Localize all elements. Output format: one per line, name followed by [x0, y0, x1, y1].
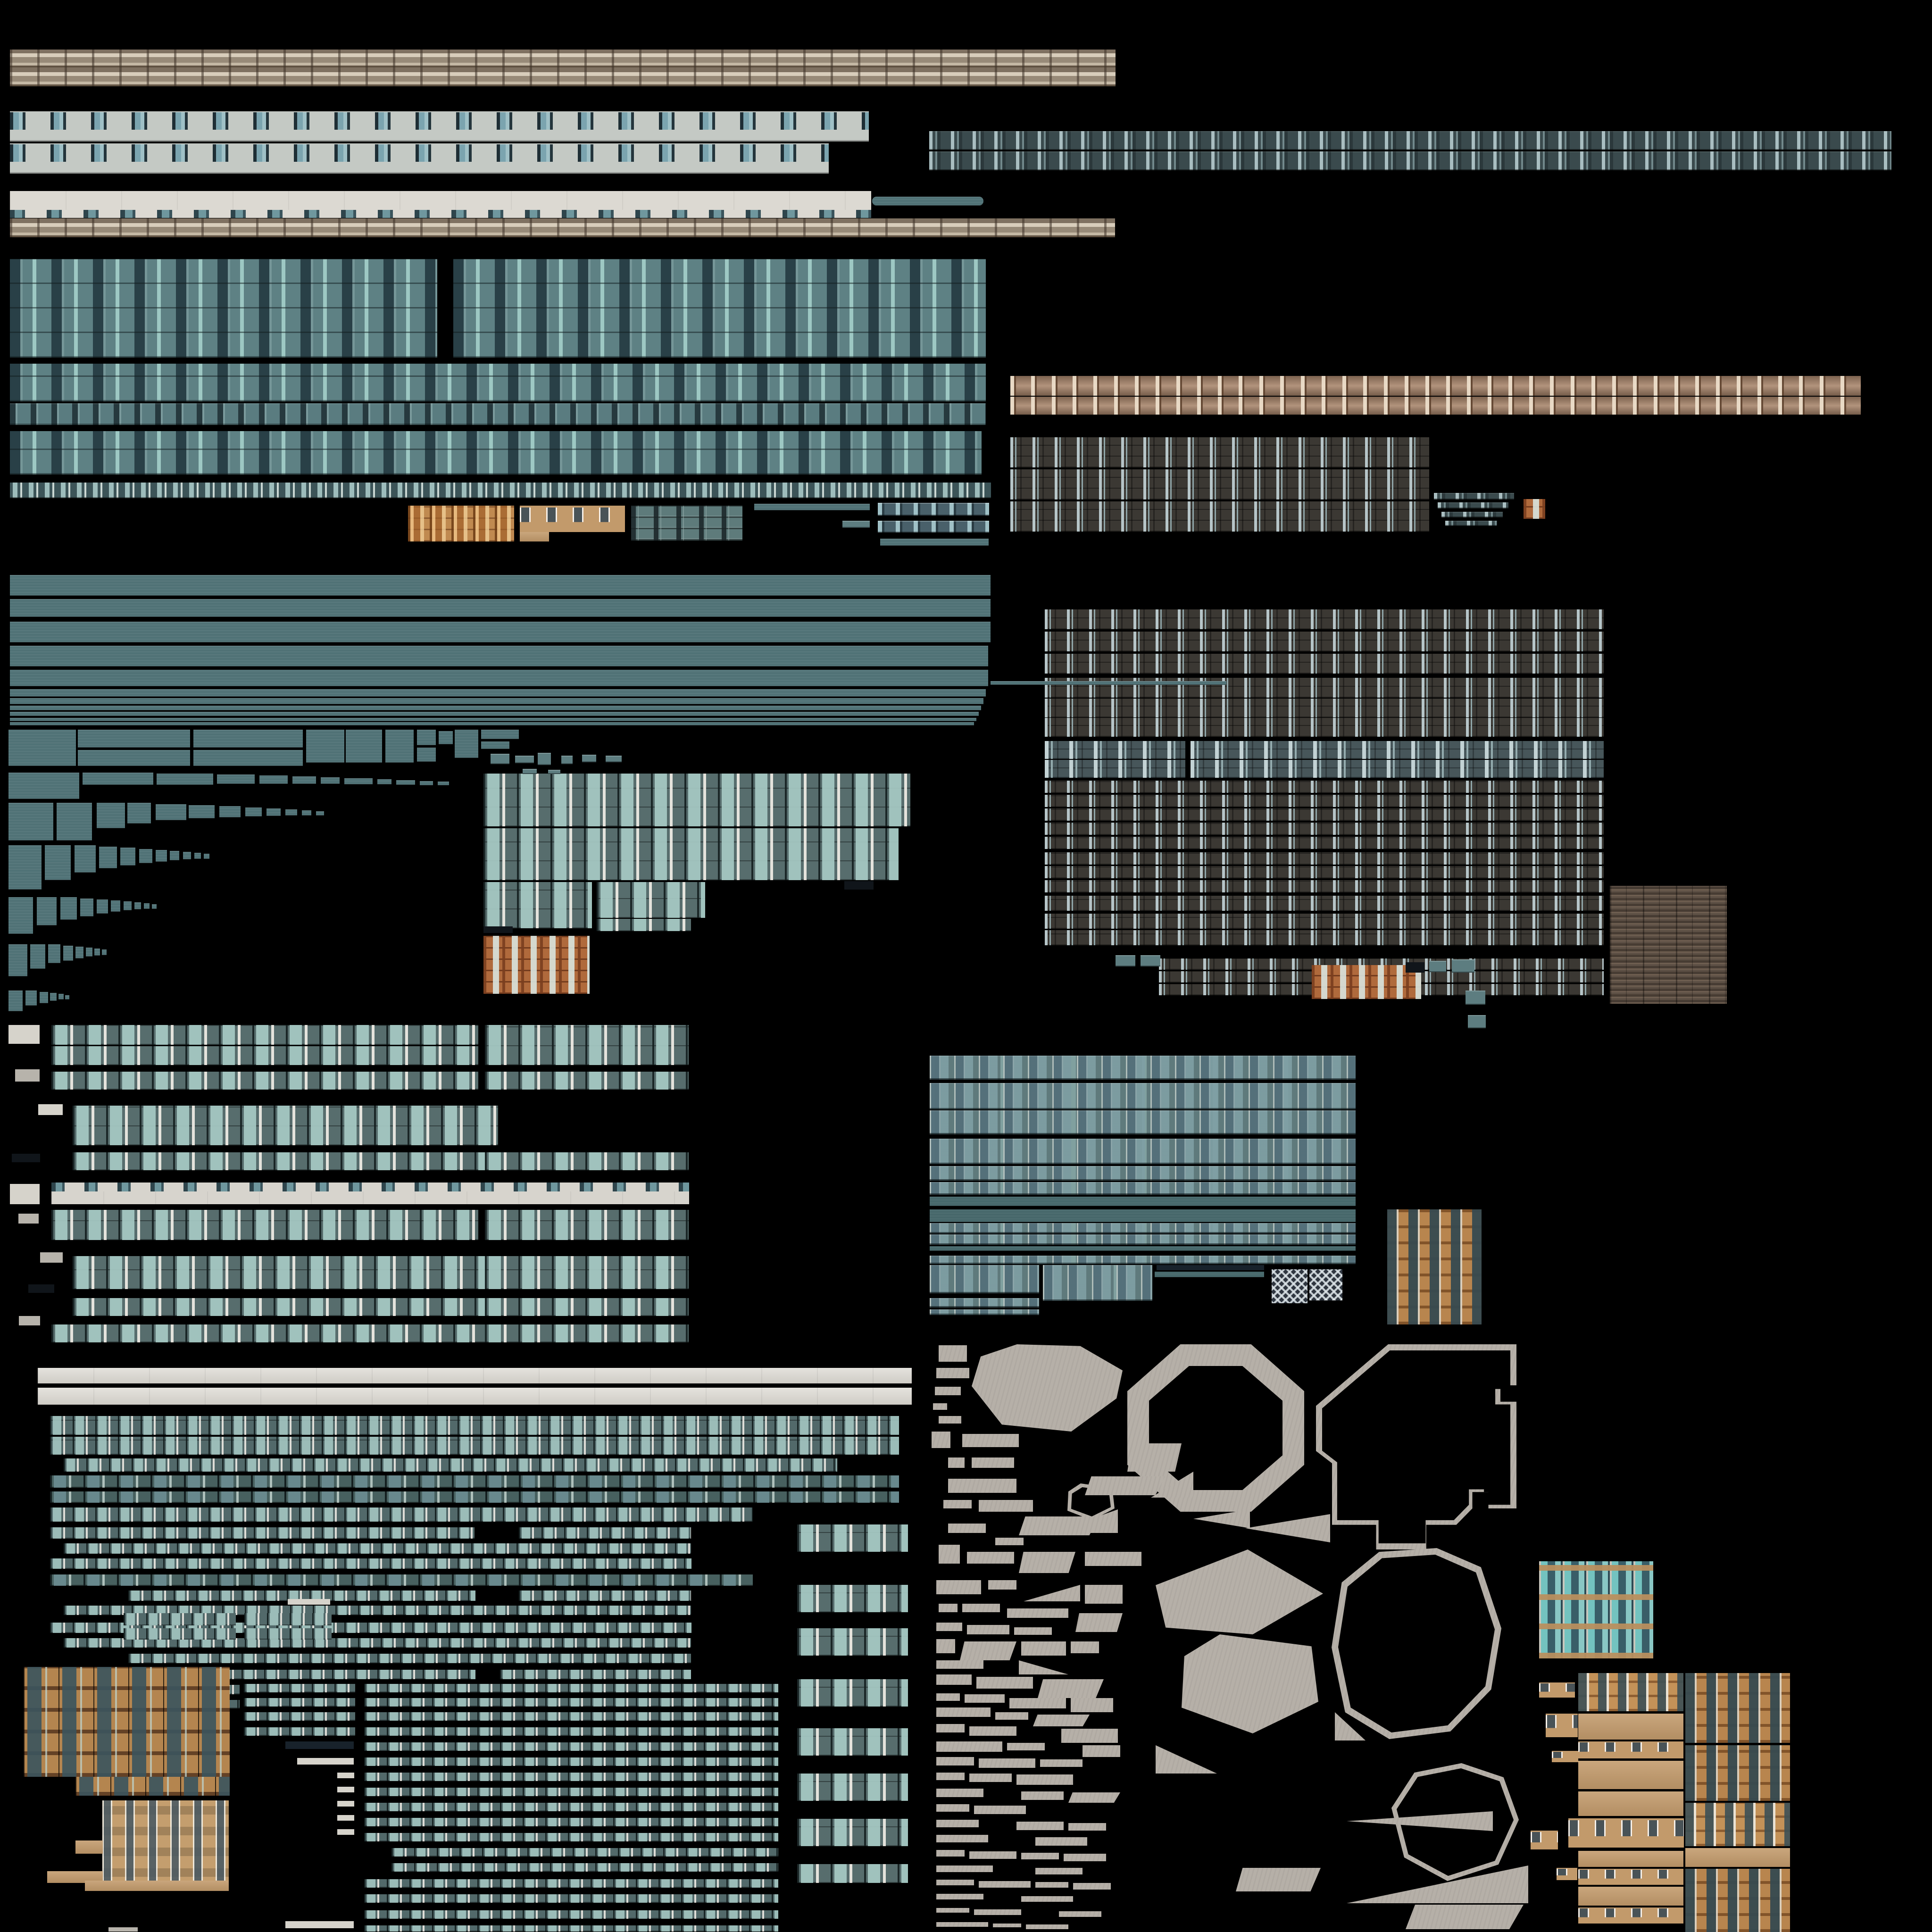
row-h [73, 1298, 500, 1316]
field-r14 [64, 1638, 691, 1648]
cascade-cell [156, 804, 186, 820]
cascade-cell [58, 994, 64, 999]
cascade-band-8 [10, 706, 981, 710]
poly-hexblob [972, 1344, 1123, 1432]
field-r5 [50, 1491, 899, 1503]
cascade-cell [481, 741, 509, 749]
poly-s56 [936, 1773, 965, 1780]
tanchip-2 [1546, 1714, 1578, 1737]
cascade-cell [8, 845, 42, 890]
poly-s80 [1021, 1896, 1073, 1902]
cascade-band-3 [10, 622, 991, 642]
poly-pentagon [1182, 1634, 1318, 1733]
poly-s90 [1156, 1745, 1217, 1774]
tealsolid-s2 [880, 539, 989, 546]
chip-a1 [8, 1025, 40, 1044]
tanchip-5 [1557, 1868, 1577, 1880]
darkgrid-t6 [1045, 852, 1604, 865]
tanchip-3 [1552, 1751, 1578, 1762]
cascade-cell [80, 899, 93, 916]
field-r22b [364, 1727, 778, 1736]
orangeblk-1 [1685, 1673, 1790, 1743]
cascade-cell [219, 806, 241, 817]
poly-s47 [936, 1724, 965, 1732]
brownstrip-1 [1010, 376, 1861, 396]
poly-s75 [936, 1880, 974, 1885]
darkthin-r4 [1445, 521, 1497, 526]
poly-s11 [943, 1500, 972, 1508]
tealchip-m5 [582, 755, 596, 762]
glass-sub-3 [1155, 1272, 1264, 1277]
darkgrid-lt-2a [1045, 760, 1185, 778]
bluewin-strip-2 [10, 143, 829, 174]
cascade-cell [78, 730, 190, 748]
poly-s25 [962, 1604, 1000, 1612]
tanchip-4 [1531, 1831, 1558, 1849]
white-band-2 [38, 1388, 912, 1405]
cascade-cell [78, 750, 190, 766]
bluewin-strip-1 [10, 111, 869, 142]
cascade-cell [25, 991, 37, 1006]
poly-s77 [1035, 1882, 1068, 1888]
poly-s28 [936, 1623, 962, 1631]
field-r17 [124, 1613, 236, 1625]
poly-s82 [974, 1909, 1021, 1915]
poly-s67 [936, 1835, 988, 1842]
cascade-cell [344, 778, 373, 784]
glass-band-3 [930, 1246, 1356, 1251]
poly-s2 [936, 1368, 969, 1378]
glass-r2 [930, 1083, 1356, 1109]
poly-s66 [1068, 1823, 1106, 1831]
poly-s48 [969, 1726, 1016, 1736]
tancol-3 [1578, 1741, 1683, 1758]
poly-trap-2 [1127, 1443, 1182, 1472]
tealfacade-row-3 [10, 431, 982, 475]
chip-w8 [285, 1921, 354, 1928]
poly-octagon-ring-2 [1332, 1548, 1501, 1739]
cascade-cell [102, 949, 107, 955]
orangeblk-2 [1685, 1745, 1790, 1801]
cascade-cell [63, 946, 73, 961]
poly-s59 [936, 1789, 983, 1797]
cascade-cell [37, 897, 57, 925]
poly-s84 [936, 1922, 988, 1927]
poly-s40 [936, 1693, 960, 1701]
chip-w6 [337, 1815, 354, 1821]
bluewin-sm-2 [878, 521, 989, 533]
field-r6 [50, 1507, 753, 1522]
poly-s72 [1064, 1854, 1106, 1861]
cascade-cell [50, 993, 57, 1001]
poly-s37 [936, 1674, 972, 1685]
cascade-tail [991, 681, 1226, 685]
field-r32 [364, 1879, 778, 1888]
orangeblk-3 [1685, 1803, 1790, 1846]
cascade-band-2 [10, 599, 991, 617]
tan-tab-1 [75, 1840, 103, 1854]
cascade-cell [193, 730, 303, 748]
cascade-cell [8, 991, 23, 1011]
field-r19b [244, 1684, 355, 1692]
row-g-r [485, 1256, 689, 1289]
row-d-r [485, 1152, 689, 1170]
tealfacade-block-a [10, 259, 437, 358]
field-r11b [519, 1591, 691, 1601]
tealtile-sub-1 [483, 882, 592, 928]
cascade-cell [170, 851, 179, 860]
brick-chip-1 [1524, 499, 1545, 519]
rcol-b1 [797, 1524, 908, 1552]
poly-s23 [1085, 1585, 1123, 1604]
darkgrid-top-3 [1010, 501, 1429, 532]
poly-trap-1 [1406, 1905, 1524, 1929]
poly-s1 [939, 1345, 967, 1362]
rcol-b8 [797, 1864, 908, 1883]
field-r7 [50, 1527, 475, 1539]
tealchip-s1 [842, 521, 870, 528]
tealchip-m2 [515, 756, 534, 763]
poly-s64 [936, 1820, 979, 1827]
cascade-cell [139, 849, 152, 863]
poly-s9 [972, 1457, 1014, 1468]
cascade-band-10 [10, 718, 976, 721]
poly-s45 [995, 1712, 1028, 1720]
glass-r1 [930, 1056, 1356, 1080]
cascade-cell [285, 809, 297, 816]
darkgrid-r5 [1045, 699, 1604, 717]
poly-s53 [936, 1757, 974, 1765]
row-c [73, 1106, 498, 1145]
darkgrid-t3 [1045, 808, 1604, 821]
field-r20b [244, 1698, 355, 1707]
tealchip-m3 [538, 753, 551, 765]
chip-a3 [12, 1154, 40, 1162]
chip-a8 [19, 1316, 40, 1325]
poly-castle-ring [1316, 1344, 1516, 1549]
bluewin-sm-1 [878, 503, 989, 516]
poly-s50 [936, 1741, 1002, 1752]
poly-s22 [1024, 1585, 1080, 1601]
chip-a6 [40, 1252, 63, 1263]
field-r21b [364, 1712, 778, 1721]
row-b-r [485, 1072, 689, 1090]
chip-w3 [337, 1773, 354, 1778]
poly-s83 [1059, 1911, 1101, 1917]
poly-s89 [1236, 1868, 1321, 1891]
poly-s10 [948, 1479, 1016, 1493]
poly-s5 [939, 1416, 961, 1424]
field-r28 [364, 1818, 778, 1826]
cascade-cell [259, 775, 288, 784]
field-r7b [519, 1527, 691, 1539]
darkgrid-t8 [1045, 880, 1604, 892]
poly-s26 [1007, 1608, 1068, 1618]
cascade-cell [144, 903, 150, 909]
cascade-cell [65, 995, 69, 999]
cascade-cell [417, 730, 436, 745]
tealchip-m8 [548, 770, 560, 774]
glass-r3 [930, 1110, 1356, 1134]
row-f-r [485, 1210, 689, 1240]
orangebal-main [24, 1667, 230, 1777]
tealchip-m4 [561, 756, 573, 764]
cascade-cell [396, 780, 415, 785]
orangeblk-4 [1685, 1848, 1790, 1867]
cascade-band-4 [10, 646, 988, 666]
poly-s14 [948, 1524, 986, 1533]
tealfacade-block-b [453, 259, 986, 358]
poly-s32 [960, 1641, 1016, 1660]
darkslate-strip-1 [929, 131, 1891, 150]
poly-s20 [936, 1580, 981, 1594]
white-band-1 [38, 1368, 912, 1383]
poly-s17 [967, 1552, 1014, 1564]
orangeblk-5 [1685, 1869, 1790, 1932]
cascade-cell [420, 781, 433, 785]
poly-s76 [979, 1881, 1031, 1888]
beige-strip-1 [10, 50, 1116, 86]
slatebal-1 [631, 506, 742, 541]
cascade-cell [124, 901, 132, 910]
cascade-cell [346, 730, 382, 763]
poly-s85 [993, 1924, 1021, 1927]
cascade-cell [60, 897, 77, 920]
poly-s13 [1019, 1516, 1099, 1535]
poly-s86 [1026, 1924, 1068, 1929]
row-a2 [51, 1046, 478, 1065]
darkgrid-top-2 [1010, 469, 1429, 500]
poly-s15 [995, 1538, 1024, 1545]
field-r22 [244, 1727, 355, 1736]
darkgrid-t7 [1045, 866, 1604, 878]
orangebal-ext [75, 1777, 230, 1796]
cascade-cell [194, 853, 201, 859]
rcol-b6 [797, 1774, 908, 1801]
glass-sub-1 [930, 1265, 1039, 1293]
row-a-r [485, 1025, 689, 1065]
poly-s42 [1009, 1698, 1066, 1708]
cascade-cell [204, 854, 209, 859]
cascade-cell [266, 808, 281, 816]
poly-s3 [935, 1387, 961, 1395]
cascade-cell [385, 730, 414, 763]
poly-s49 [1061, 1729, 1118, 1743]
cascade-cell [217, 774, 255, 784]
poly-tri-4 [1245, 1514, 1330, 1542]
poly-s68 [1035, 1837, 1087, 1846]
chip-a4 [10, 1184, 40, 1204]
tealchip-m1 [491, 754, 509, 764]
poly-s46 [1033, 1715, 1090, 1726]
poly-s88 [1193, 1509, 1250, 1528]
poly-s43 [1071, 1698, 1113, 1712]
cascade-cell [8, 730, 76, 766]
tealchip-g1 [1116, 955, 1135, 966]
rcol-b7 [797, 1819, 908, 1846]
tancol-1 [1578, 1673, 1683, 1711]
cascade-cell [157, 774, 213, 785]
field-r35 [364, 1925, 778, 1932]
tan-sm-block [102, 1800, 229, 1881]
field-r3 [64, 1458, 837, 1472]
cascade-cell [94, 949, 100, 956]
tancol-2 [1578, 1714, 1683, 1740]
cascade-cell [97, 899, 108, 914]
cascade-band-11 [10, 722, 974, 725]
poly-s70 [969, 1851, 1016, 1859]
darkgrid-top-1 [1010, 437, 1429, 467]
poly-s35 [936, 1660, 983, 1669]
cascade-cell [292, 776, 316, 784]
tealchip-m6 [606, 756, 622, 762]
tealtile-grid-1 [483, 774, 910, 826]
tealchip-m7 [523, 769, 537, 774]
whitewin-strip [10, 191, 871, 218]
row-i-r [485, 1324, 689, 1342]
cascade-cell [97, 803, 125, 828]
field-r17b [244, 1613, 332, 1625]
row-d [73, 1152, 498, 1170]
rcol-b5 [797, 1728, 908, 1756]
ornament-2 [1309, 1269, 1342, 1300]
cascade-cell [8, 803, 53, 841]
field-r18b [244, 1628, 332, 1640]
tanchip-1 [1539, 1682, 1575, 1698]
poly-s6 [932, 1432, 950, 1448]
cascade-cell [57, 803, 92, 841]
cascade-cell [193, 750, 303, 766]
field-r10 [50, 1574, 753, 1586]
cascade-cell [134, 902, 141, 909]
cascade-cell [156, 850, 167, 862]
poly-s74 [1035, 1868, 1083, 1874]
poly-s39 [1038, 1679, 1104, 1698]
cascade-cell [86, 948, 92, 957]
tealfacade-row-2 [10, 364, 986, 401]
row-i [51, 1324, 493, 1342]
brownstrip-2 [1010, 397, 1861, 415]
cascade-cell [377, 779, 391, 784]
cascade-cell [99, 847, 117, 868]
field-r21 [244, 1712, 355, 1721]
cascade-cell [439, 731, 453, 744]
glass-r8 [930, 1234, 1356, 1245]
chip-g9 [108, 1927, 138, 1932]
blueglass-block [1539, 1561, 1653, 1658]
darkgrid-t2 [1045, 795, 1604, 807]
glass-r4 [930, 1139, 1356, 1164]
poly-s12 [979, 1500, 1033, 1512]
row-h-r [485, 1298, 689, 1316]
glass-band-2 [930, 1209, 1356, 1222]
chip-w4 [337, 1787, 354, 1792]
cascade-band-5 [10, 670, 988, 686]
poly-s29 [967, 1625, 1009, 1634]
poly-s73 [936, 1865, 993, 1872]
tealrow-2b [10, 403, 986, 425]
cascade-cell [75, 845, 96, 873]
cascade-cell [455, 730, 478, 758]
poly-s27 [1075, 1613, 1123, 1632]
texture-atlas-canvas [0, 0, 1932, 1932]
tan-block-1 [520, 506, 625, 532]
poly-castle-ring-hole [1322, 1350, 1510, 1543]
poly-s71 [1021, 1853, 1059, 1859]
poly-s61 [1068, 1792, 1120, 1803]
field-r18 [124, 1628, 236, 1640]
field-r25 [364, 1773, 778, 1781]
poly-s81 [936, 1908, 969, 1913]
field-r24 [364, 1757, 778, 1766]
poly-s78 [1073, 1883, 1111, 1890]
cascade-band-1 [10, 575, 991, 596]
darkgrid-m3 [1045, 930, 1604, 945]
poly-s7 [962, 1434, 1019, 1447]
rcol-b4 [797, 1679, 908, 1707]
poly-s36 [1019, 1660, 1068, 1674]
field-r19c [364, 1684, 778, 1692]
cascade-cell [48, 944, 60, 963]
cascade-cell [321, 777, 340, 784]
cascade-cell [189, 805, 215, 818]
tan-bottom [85, 1881, 229, 1891]
darkthin-r1 [1434, 493, 1514, 500]
tancol-10 [1578, 1907, 1683, 1924]
tealtile-sub-2 [597, 882, 705, 918]
chip-a9 [38, 1104, 63, 1115]
poly-s58 [1016, 1774, 1073, 1785]
rcol-b2 [797, 1585, 908, 1612]
glass-r9 [930, 1256, 1356, 1264]
cascade-cell [127, 803, 151, 824]
tancol-5 [1578, 1791, 1683, 1816]
tancol-6 [1568, 1818, 1684, 1848]
tealsolid-s1 [754, 504, 870, 510]
brick-2 [1312, 965, 1421, 999]
cascade-cell [120, 848, 135, 866]
poly-octagon-ring-2-hole [1338, 1555, 1495, 1732]
field-r34 [364, 1910, 778, 1919]
chip-w5 [337, 1801, 354, 1807]
tancol-4 [1578, 1761, 1683, 1789]
poly-s18 [1019, 1552, 1075, 1573]
field-r15 [128, 1654, 691, 1663]
orangewin-tower [1387, 1209, 1482, 1324]
tealchip-g2 [1141, 955, 1160, 966]
cascade-band-9 [10, 712, 979, 716]
darkgrid-lt-2b [1191, 760, 1604, 778]
cascade-cell [183, 852, 191, 859]
poly-s34 [1071, 1641, 1099, 1653]
poly-s54 [979, 1758, 1035, 1768]
cascade-cell [8, 773, 79, 799]
field-r29 [364, 1833, 778, 1841]
darkgrid-r1 [1045, 609, 1604, 629]
glass-r7 [930, 1223, 1356, 1233]
tancol-9 [1578, 1887, 1683, 1906]
poly-s62 [936, 1804, 969, 1812]
navy-s2 [1157, 1265, 1264, 1270]
teal-pill [872, 197, 983, 206]
chip-w2 [297, 1758, 354, 1765]
poly-s16 [939, 1545, 960, 1564]
darkgrid-r3 [1045, 654, 1604, 674]
tealchip-g5 [1466, 991, 1485, 1005]
poly-s19 [1085, 1552, 1141, 1566]
darkgrid-t1 [1045, 781, 1604, 793]
glass-band-1 [930, 1197, 1356, 1206]
